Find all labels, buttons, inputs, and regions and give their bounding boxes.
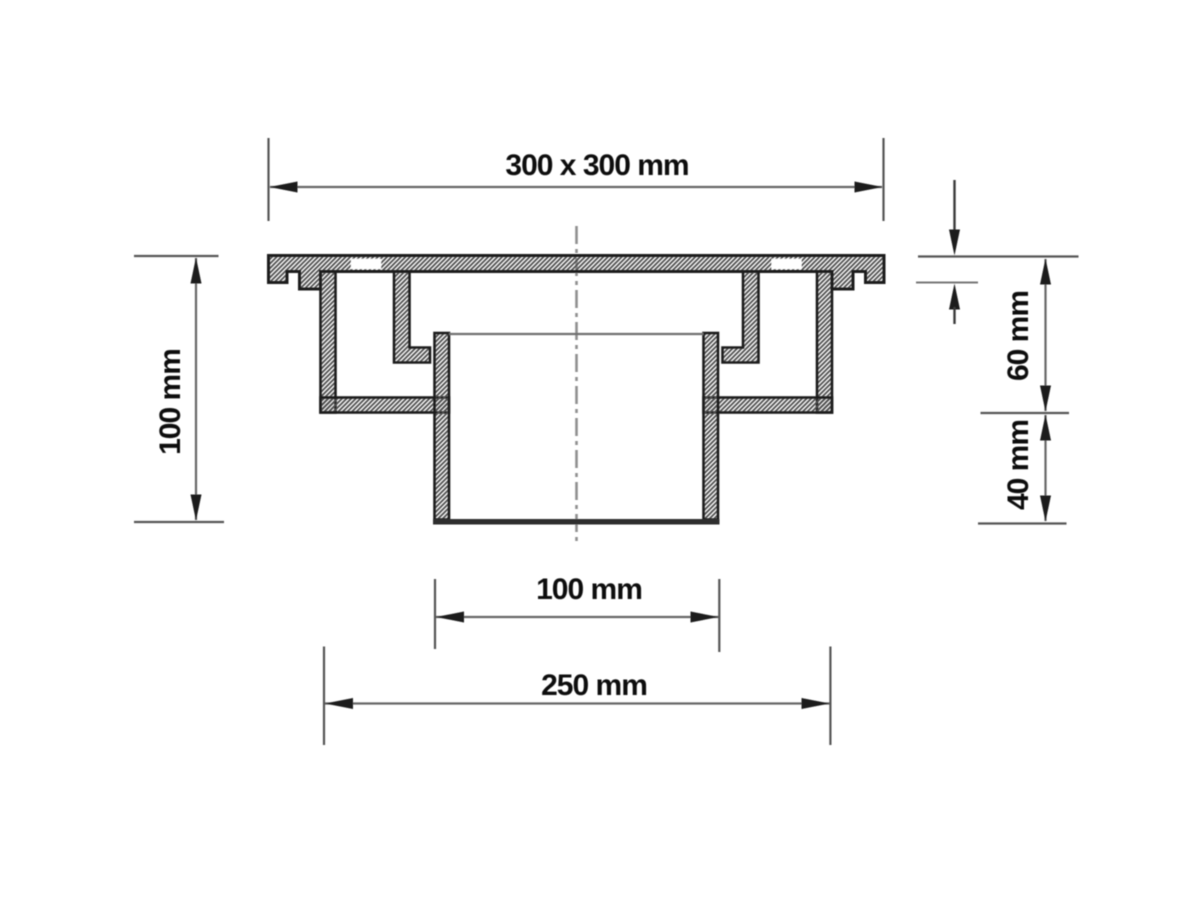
svg-text:100 mm: 100 mm — [536, 573, 642, 606]
svg-text:40 mm: 40 mm — [1002, 420, 1035, 510]
svg-text:250 mm: 250 mm — [541, 669, 647, 702]
svg-text:100 mm: 100 mm — [154, 349, 187, 455]
svg-text:60 mm: 60 mm — [1002, 291, 1035, 381]
svg-text:300 x 300 mm: 300 x 300 mm — [505, 149, 688, 182]
